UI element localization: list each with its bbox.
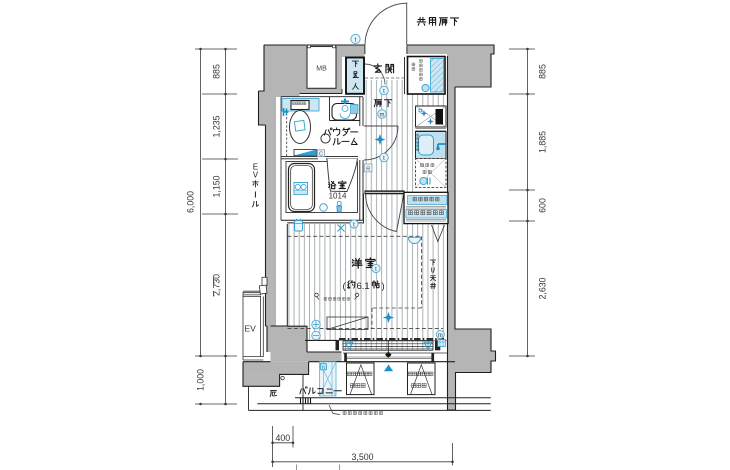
svg-text:400: 400	[275, 433, 290, 443]
svg-text:1,235: 1,235	[212, 115, 222, 137]
svg-text:m: m	[438, 333, 443, 339]
svg-text:m: m	[380, 112, 385, 118]
svg-text:6,000: 6,000	[186, 191, 196, 213]
svg-text:1,885: 1,885	[538, 131, 548, 153]
svg-text:885: 885	[538, 64, 548, 79]
svg-text:R: R	[366, 166, 370, 172]
svg-text:2,630: 2,630	[538, 277, 548, 299]
svg-text:V: V	[253, 171, 259, 180]
svg-text:885: 885	[212, 64, 222, 79]
svg-text:6.1: 6.1	[357, 281, 370, 292]
svg-text:h: h	[322, 365, 325, 371]
svg-text:EV: EV	[245, 324, 257, 334]
svg-text:1,150: 1,150	[212, 175, 222, 197]
svg-text:1014: 1014	[329, 192, 347, 201]
svg-text:MB: MB	[316, 66, 327, 73]
svg-text:3,500: 3,500	[351, 452, 373, 462]
svg-text:): )	[382, 281, 385, 292]
svg-text:1,000: 1,000	[196, 369, 206, 391]
svg-text:600: 600	[538, 198, 548, 213]
svg-text:C: C	[319, 151, 323, 157]
